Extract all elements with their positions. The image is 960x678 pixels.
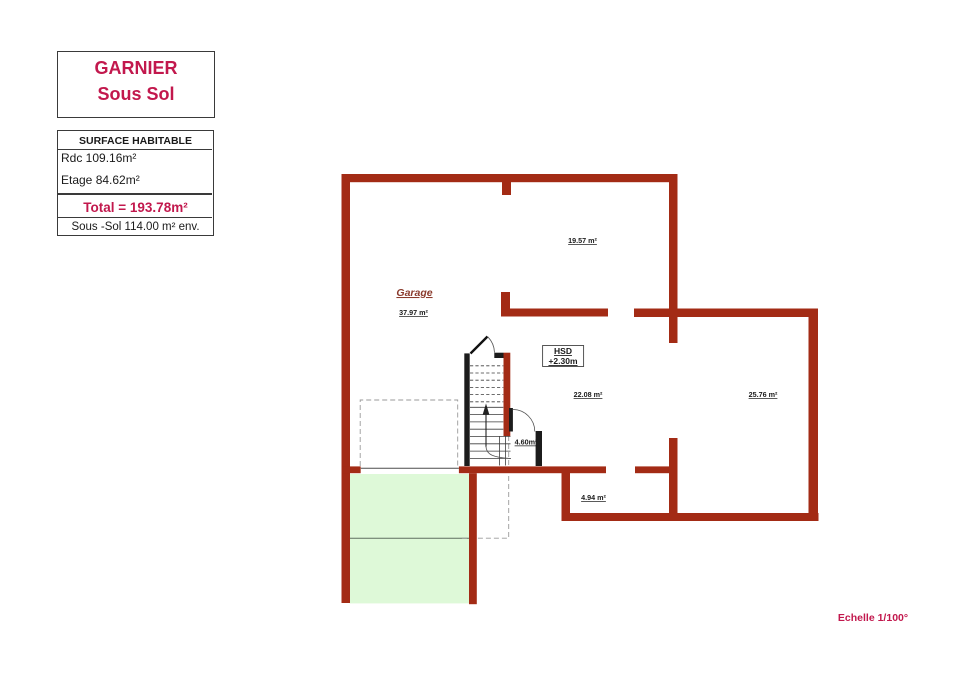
svg-text:4.94 m²: 4.94 m²	[581, 493, 606, 502]
svg-text:19.57 m²: 19.57 m²	[568, 236, 597, 245]
svg-text:Garage: Garage	[396, 287, 432, 299]
svg-text:+2.30m: +2.30m	[548, 356, 578, 366]
svg-text:25.76 m²: 25.76 m²	[749, 390, 778, 399]
svg-text:37.97 m²: 37.97 m²	[399, 308, 428, 317]
svg-text:HSD: HSD	[554, 346, 572, 356]
svg-text:4.60m²: 4.60m²	[515, 438, 538, 447]
svg-text:22.08 m²: 22.08 m²	[574, 390, 603, 399]
svg-text:Echelle 1/100°: Echelle 1/100°	[838, 612, 908, 624]
